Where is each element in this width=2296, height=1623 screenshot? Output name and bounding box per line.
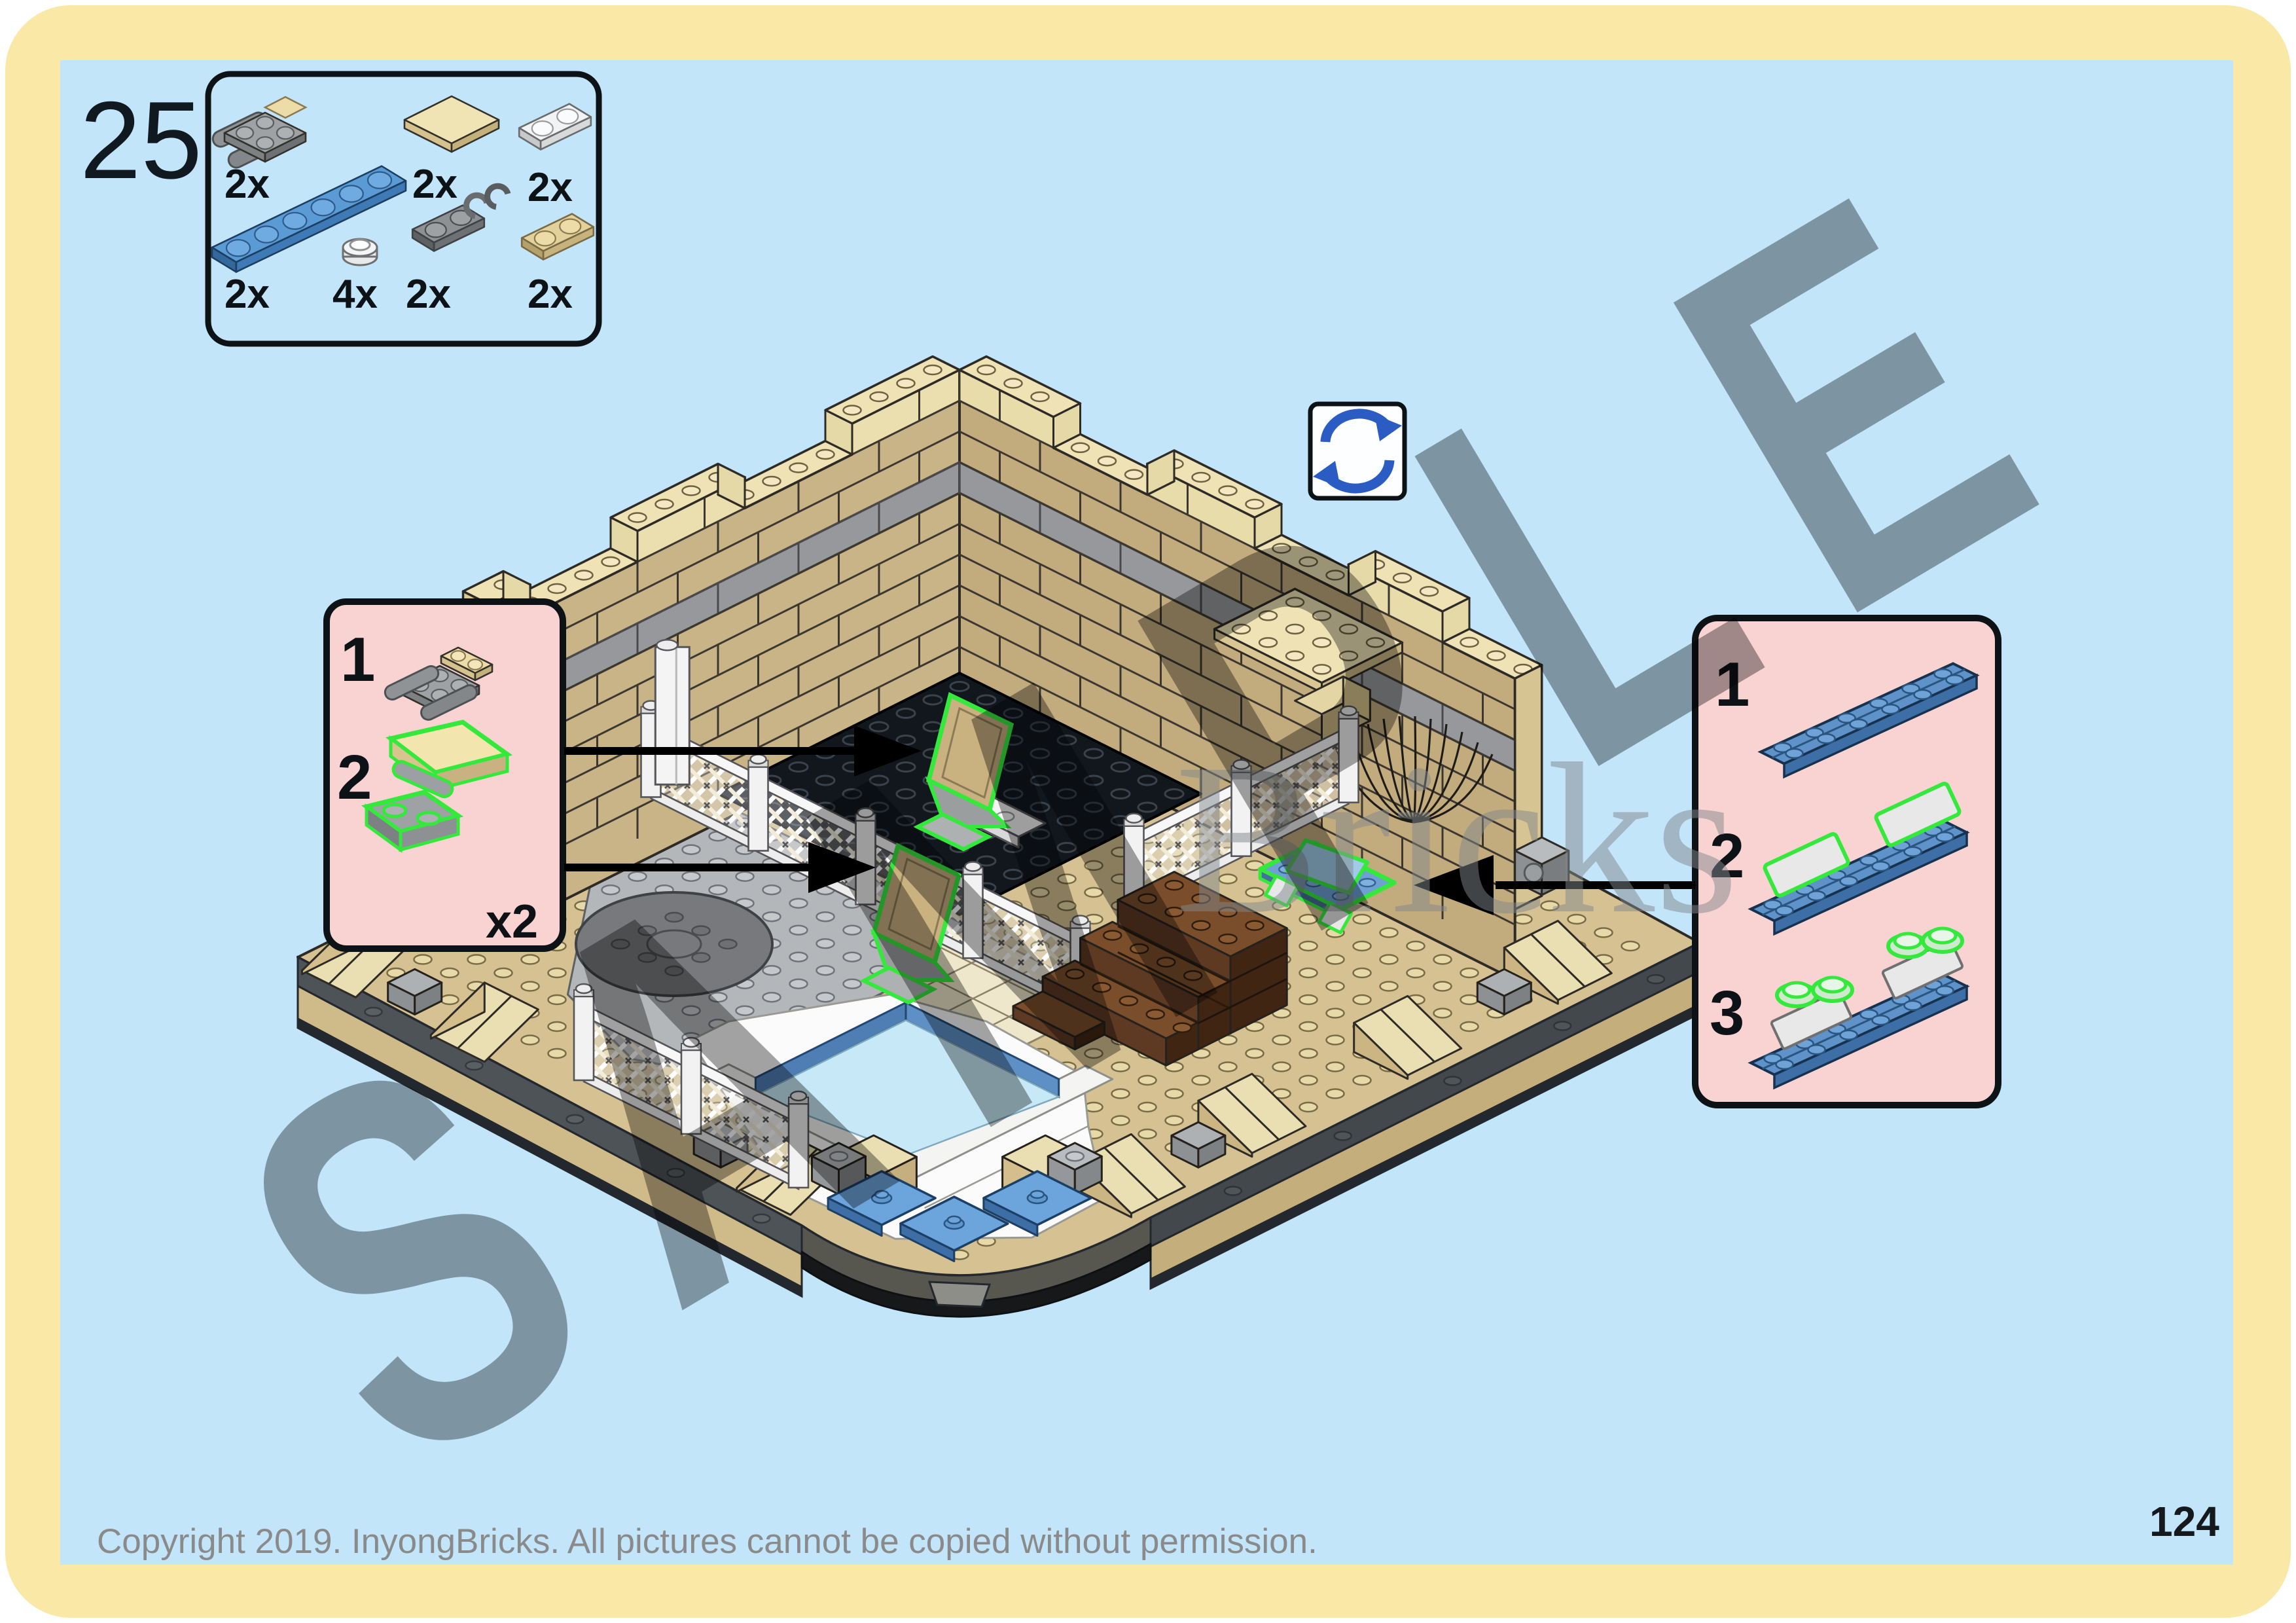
- svg-text:3: 3: [1710, 978, 1744, 1048]
- svg-text:2x: 2x: [224, 272, 270, 317]
- svg-text:124: 124: [2149, 1498, 2219, 1545]
- svg-text:2x: 2x: [224, 162, 270, 207]
- svg-text:2x: 2x: [406, 272, 451, 317]
- svg-text:2x: 2x: [528, 272, 573, 317]
- svg-text:Copyright 2019. InyongBricks.: Copyright 2019. InyongBricks. All pictur…: [97, 1522, 1318, 1561]
- svg-text:2x: 2x: [528, 165, 573, 210]
- svg-text:25: 25: [80, 79, 202, 202]
- svg-text:4x: 4x: [332, 272, 378, 317]
- svg-text:1: 1: [340, 625, 375, 695]
- svg-text:2x: 2x: [412, 162, 457, 207]
- svg-text:2: 2: [337, 742, 372, 812]
